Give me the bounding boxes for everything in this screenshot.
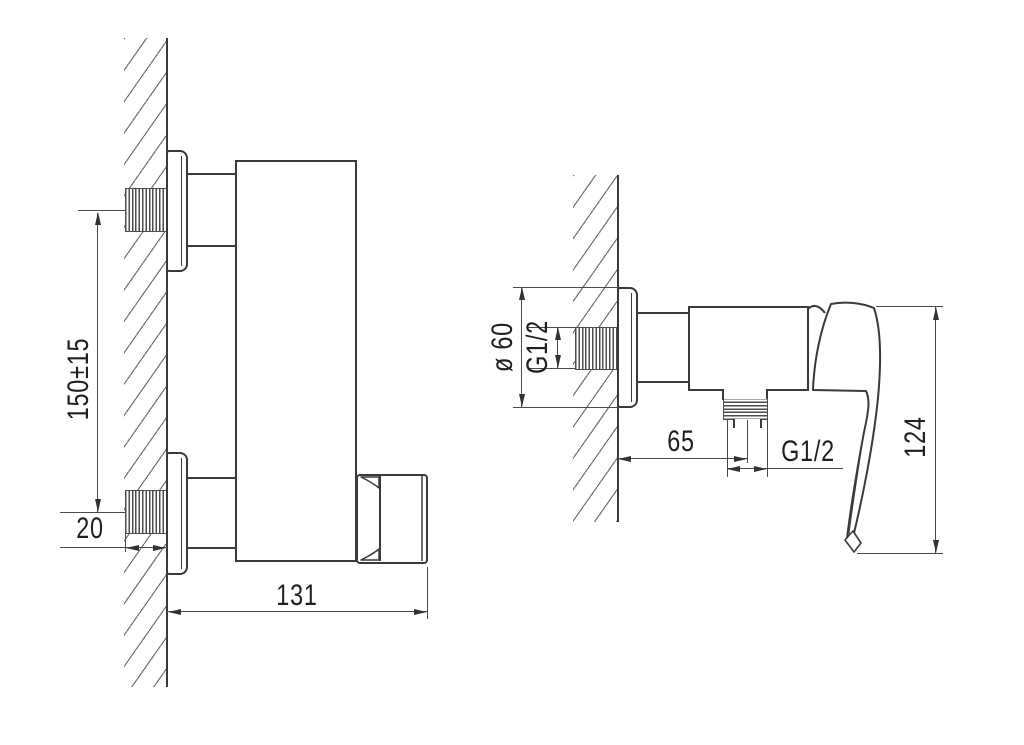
arrow-20-right <box>153 545 166 551</box>
arrow-124-top <box>933 307 939 320</box>
dim-line-20 <box>60 547 167 548</box>
arrow-d60-bottom <box>519 394 525 407</box>
arrow-g12-outlet-left <box>727 466 740 472</box>
dim-label-wall-thickness: 20 <box>76 512 104 546</box>
dim-label-body-width: 131 <box>276 579 317 613</box>
arrow-g12-inlet-top <box>555 327 561 340</box>
dim-label-handle-height: 124 <box>899 416 933 457</box>
arrow-20-left <box>126 545 139 551</box>
curved-linework <box>0 0 1024 745</box>
technical-drawing-canvas: 150±15 20 131 ø 60 G1/2 65 G1/2 124 <box>0 0 1024 745</box>
side-view-handle-outline <box>813 303 880 539</box>
arrow-150-bottom <box>95 499 101 512</box>
dim-label-outlet-thread: G1/2 <box>781 435 835 469</box>
arrow-65-left <box>618 456 631 462</box>
ext-line-d60-bottom <box>513 407 619 408</box>
arrow-124-bottom <box>933 540 939 553</box>
arrow-g12-inlet-bottom <box>555 355 561 368</box>
ext-line-d60-top <box>513 287 619 288</box>
ext-line-150-top <box>78 210 125 211</box>
arrow-150-top <box>95 212 101 225</box>
dim-label-escutcheon-diameter: ø 60 <box>486 322 520 372</box>
dim-label-inlet-thread: G1/2 <box>521 320 555 374</box>
front-view-handle-end-wedge-top <box>361 477 379 488</box>
dim-label-outlet-offset: 65 <box>667 425 695 459</box>
side-view-handle-cap-curve <box>808 306 825 313</box>
dim-line-124 <box>935 307 936 553</box>
arrow-g12-outlet-right <box>754 466 767 472</box>
arrow-65-right <box>734 456 747 462</box>
dim-line-150 <box>97 213 98 512</box>
arrow-131-left <box>168 609 181 615</box>
dim-label-center-distance: 150±15 <box>62 338 96 421</box>
front-view-handle-end-wedge-bottom <box>361 549 379 560</box>
arrow-d60-top <box>519 287 525 300</box>
arrow-131-right <box>414 609 427 615</box>
outlet-centerline <box>747 420 748 463</box>
ext-line-124-bottom <box>857 553 943 554</box>
